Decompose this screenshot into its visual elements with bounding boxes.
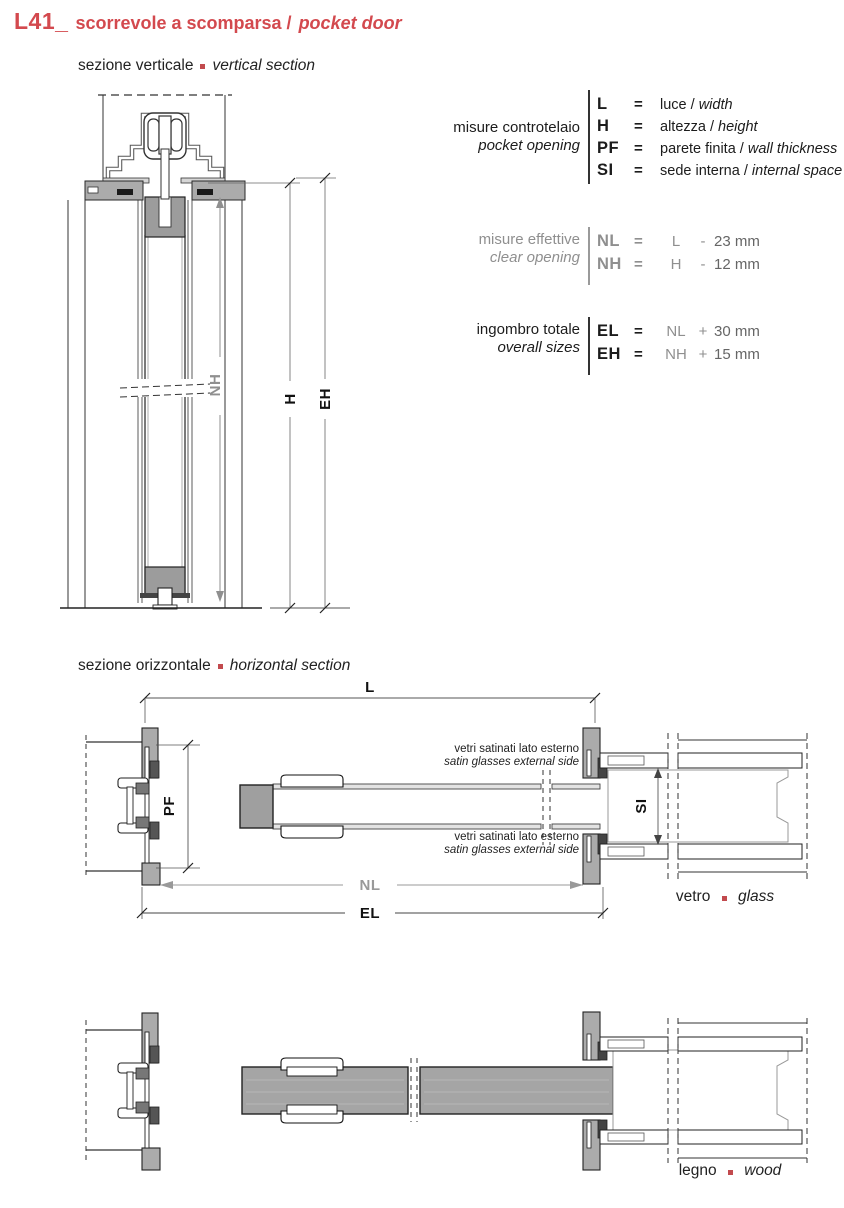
door-inside-pocket — [613, 1050, 788, 1130]
dim-label-PF: PF — [161, 796, 178, 816]
legend-pocket-opening-label: misure controtelaio pocket opening — [420, 119, 580, 155]
horizontal-section-heading: sezione orizzontale horizontal section — [78, 657, 350, 675]
pocket-counterframe-wood — [600, 1018, 807, 1163]
model-code: L41_ — [14, 8, 68, 35]
glass-note-it: vetri satinati lato esterno — [454, 831, 579, 843]
dim-label-L: L — [365, 679, 375, 696]
glass-note-en: satin glasses external side — [444, 756, 579, 768]
glass-note-bottom: vetri satinati lato esterno satin glasse… — [444, 831, 579, 856]
closing-jamb-glass — [86, 728, 160, 885]
legend-clear-opening-label: misure effettive clear opening — [420, 231, 580, 267]
floor-guide — [158, 588, 172, 605]
horizontal-section-label-it: sezione orizzontale — [78, 657, 211, 675]
glass-note-it: vetri satinati lato esterno — [454, 743, 579, 755]
vertical-section-drawing: NH H EH — [60, 85, 360, 630]
catalog-page: L41_ scorrevole a scomparsa / pocket doo… — [0, 0, 844, 1208]
red-square-icon — [200, 64, 205, 69]
legend-row-NH: NH = H - 12 mm — [597, 255, 760, 274]
horizontal-section-label-en: horizontal section — [230, 657, 351, 675]
dim-label-SI: SI — [633, 798, 650, 813]
dim-label-EL: EL — [360, 905, 380, 922]
dim-label-NL: NL — [360, 877, 381, 894]
vertical-section-label-it: sezione verticale — [78, 57, 193, 75]
handle-recess — [281, 775, 343, 787]
dimension-L: L — [140, 679, 600, 723]
closing-jamb-wood — [86, 1013, 160, 1170]
page-title: L41_ scorrevole a scomparsa / pocket doo… — [14, 8, 402, 35]
legend-row-H: H = altezza / height — [597, 117, 758, 136]
dimension-EH: EH — [296, 173, 336, 613]
wood-caption-en: wood — [744, 1162, 781, 1179]
glass-caption-it: vetro — [676, 888, 710, 905]
legend-row-NL: NL = L - 23 mm — [597, 232, 760, 251]
wood-door-panel — [242, 1058, 613, 1123]
dim-label-H: H — [282, 393, 299, 404]
handle-recess — [281, 826, 343, 838]
vertical-section-label-en: vertical section — [212, 57, 315, 75]
glass-caption: vetro glass — [635, 888, 815, 906]
legend-row-EL: EL = NL + 30 mm — [597, 322, 760, 341]
dimension-NL: NL — [160, 877, 583, 894]
pocket-entrance-jamb — [583, 728, 607, 884]
legend-divider-1 — [588, 90, 590, 184]
legend-row-PF: PF = parete finita / wall thickness — [597, 139, 837, 158]
red-square-icon — [722, 896, 727, 901]
legend-row-L: L = luce / width — [597, 95, 733, 114]
vertical-section-heading: sezione verticale vertical section — [78, 57, 315, 75]
legend-overall-sizes-label: ingombro totale overall sizes — [420, 321, 580, 357]
glass-caption-en: glass — [738, 888, 774, 905]
door-panel-vertical — [115, 149, 215, 609]
dimension-PF: PF — [156, 740, 200, 873]
legend-row-EH: EH = NH + 15 mm — [597, 345, 760, 364]
pocket-counterframe — [600, 733, 807, 880]
legend-row-SI: SI = sede interna / internal space — [597, 161, 842, 180]
legend-divider-3 — [588, 317, 590, 375]
title-italian: scorrevole a scomparsa / — [75, 13, 291, 34]
red-square-icon — [728, 1170, 733, 1175]
pocket-walls — [68, 200, 242, 608]
dimension-NH: NH — [207, 197, 224, 602]
dim-label-EH: EH — [317, 388, 334, 410]
glass-note-top: vetri satinati lato esterno satin glasse… — [444, 743, 579, 768]
wood-caption: legno wood — [640, 1162, 820, 1180]
glass-note-en: satin glasses external side — [444, 844, 579, 856]
legend-divider-2 — [588, 227, 590, 285]
title-english: pocket door — [299, 13, 402, 34]
break-mask — [115, 379, 215, 397]
dim-label-NH: NH — [207, 374, 224, 397]
wood-caption-it: legno — [679, 1162, 717, 1179]
door-stile — [240, 785, 273, 828]
red-square-icon — [218, 664, 223, 669]
